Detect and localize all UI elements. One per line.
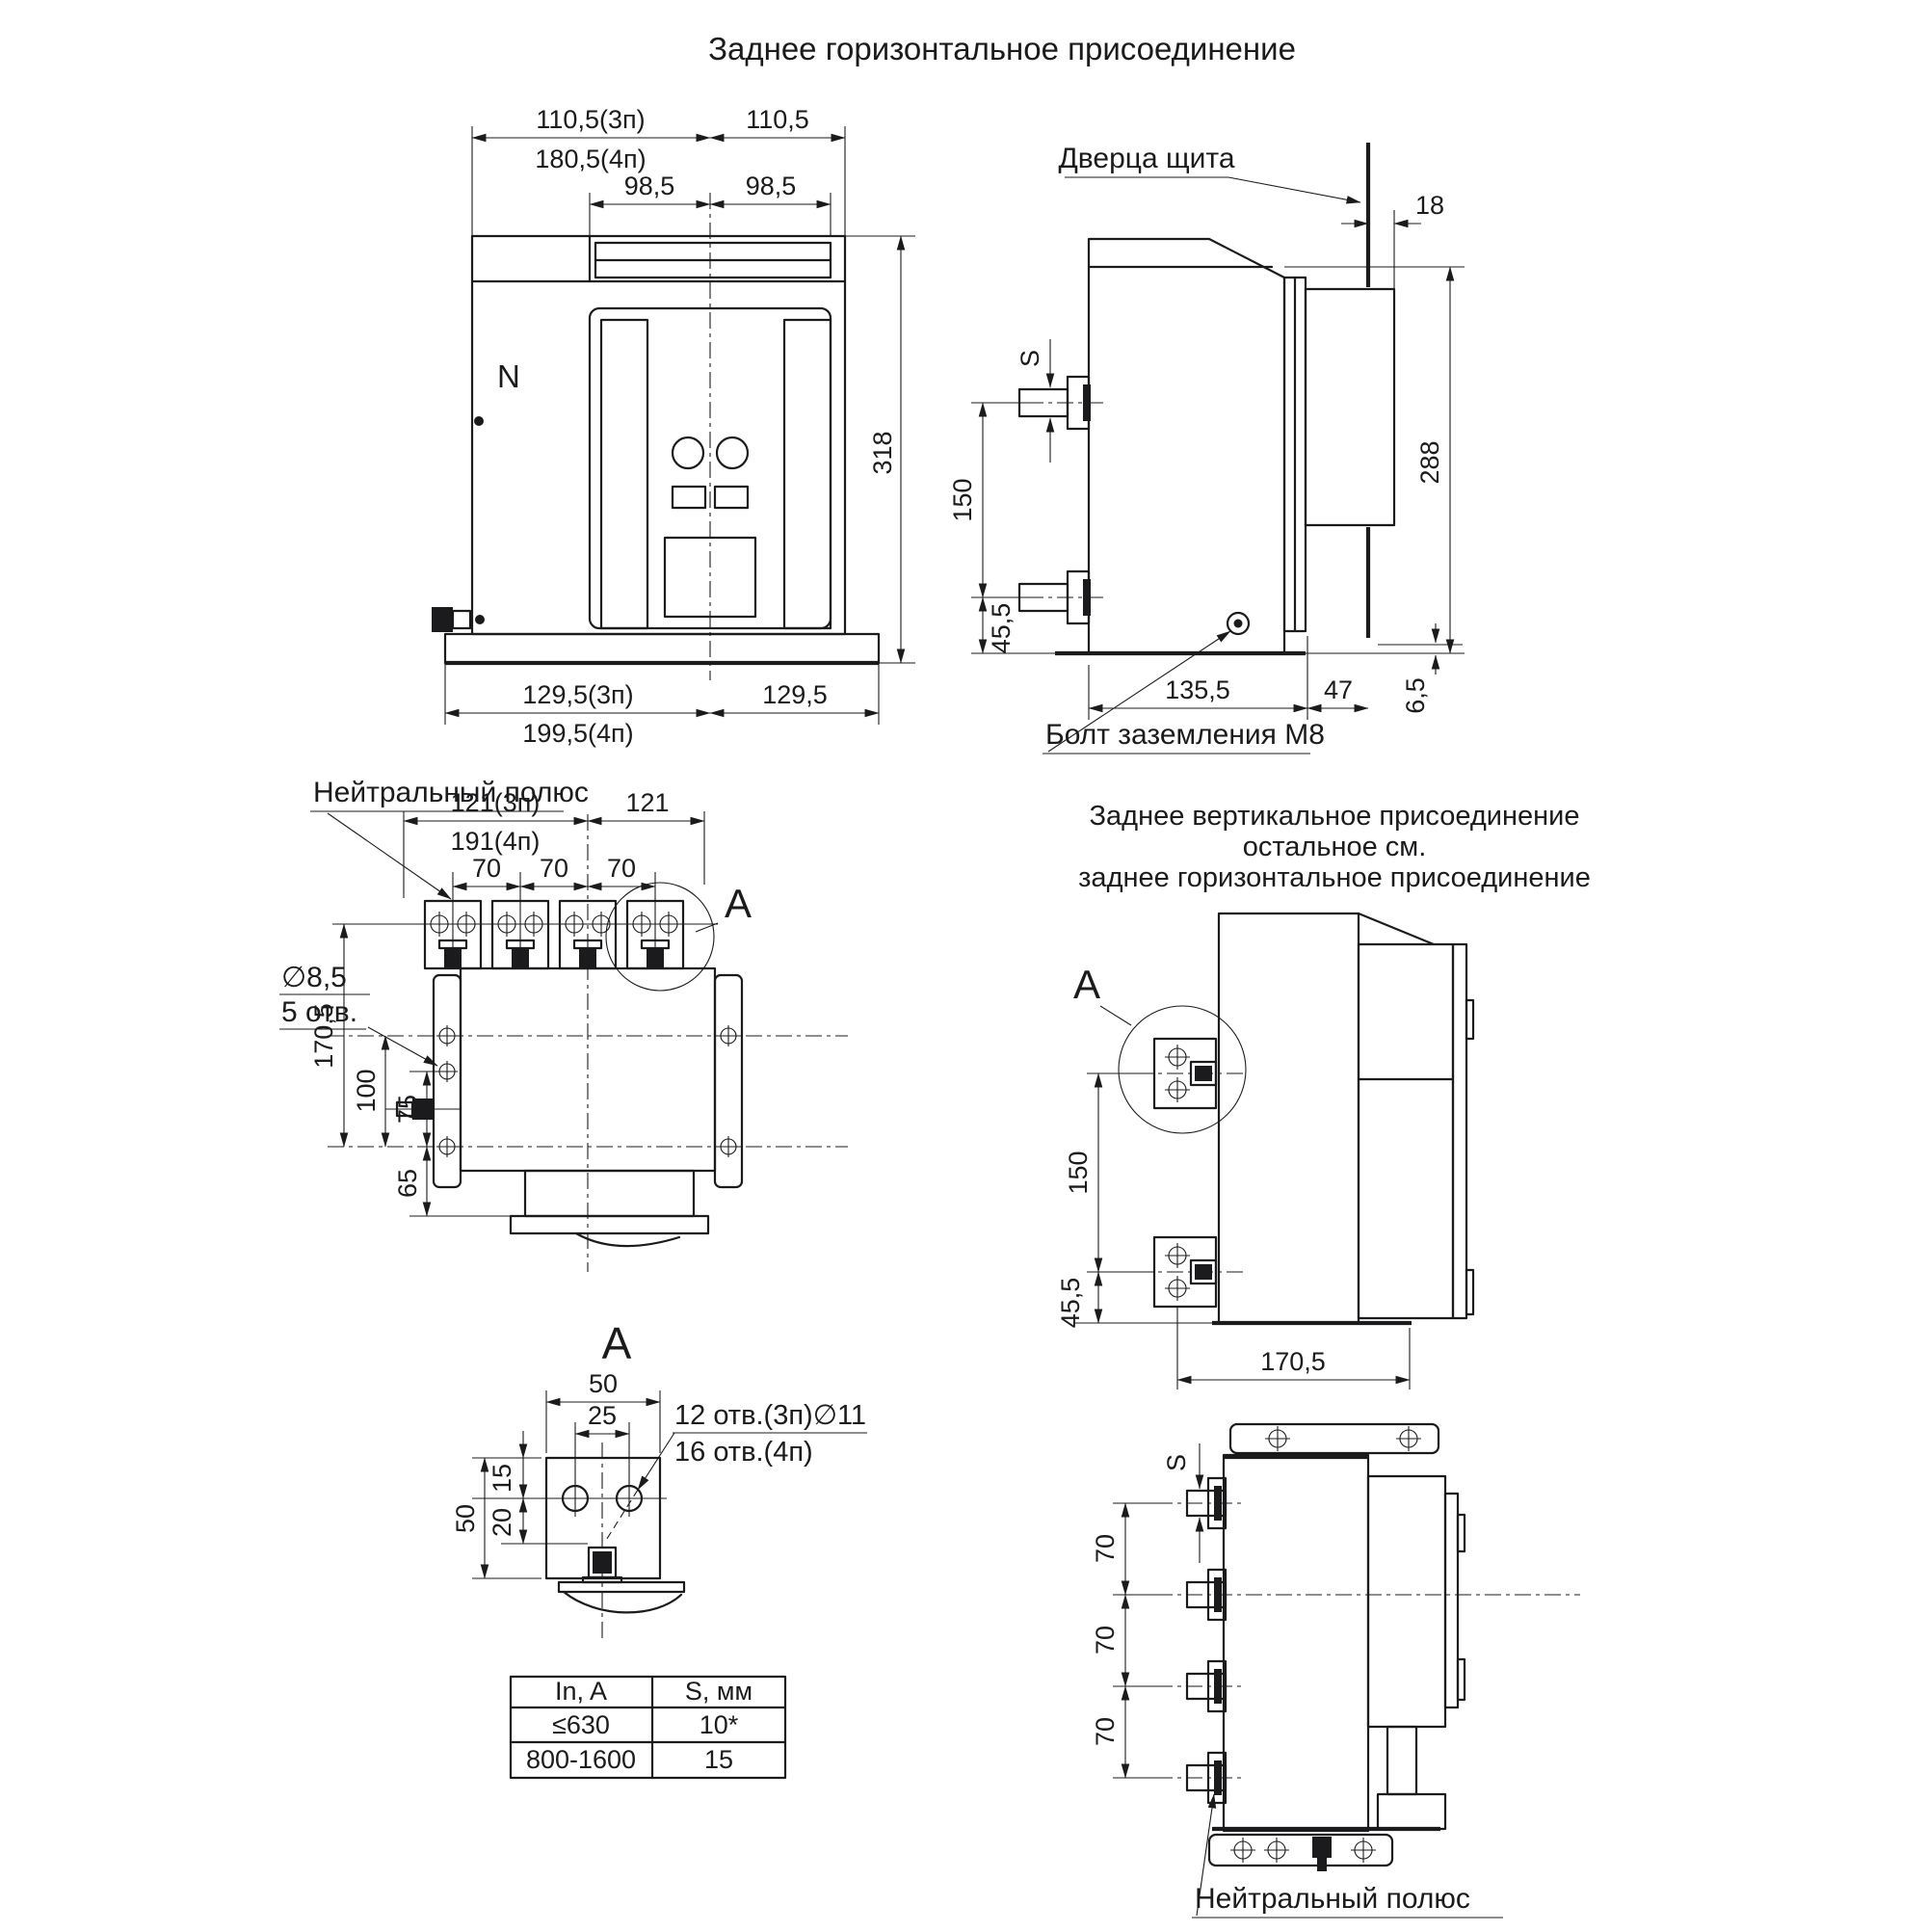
svg-text:S: S [1162,1454,1191,1471]
svg-text:288: 288 [1415,440,1444,484]
dim-front-bottom-width: 129,5(3п) 199,5(4п) 129,5 [445,663,879,748]
dim-door-gap: 6,5 [1401,623,1436,714]
bottom-mount-bracket [1209,1835,1392,1871]
dim-bottom-pole-pitch: 70 70 70 [1091,1503,1156,1778]
hole-note: ∅8,5 5 отв. [279,962,437,1066]
svg-text:70: 70 [1091,1626,1120,1654]
svg-text:45,5: 45,5 [987,603,1016,654]
neutral-pole-callout-bottom: Нейтральный полюс [1192,1794,1503,1918]
dim-terminal-thickness: S [1016,339,1050,463]
top-mount-bracket [1230,1424,1439,1453]
front-side-bolt [432,607,485,632]
dim-vertical-spacing: 150 [1064,1073,1147,1272]
mounting-base [445,634,879,663]
svg-text:50: 50 [451,1504,480,1533]
svg-text:135,5: 135,5 [1165,675,1230,704]
front-body-outline [472,236,845,634]
neutral-pole-marker: N [497,358,520,394]
pad-bolt [583,1548,621,1582]
svg-text:25: 25 [588,1401,617,1430]
bottom-view: S 70 70 70 Нейтральный полюс [1091,1424,1580,1918]
vertical-terminal-bottom [1137,1237,1243,1307]
svg-text:70: 70 [1091,1717,1120,1746]
bottom-terminal-4 [1156,1753,1243,1803]
dim-front-top-width: 110,5(3п) 180,5(4п) 110,5 [472,105,845,236]
control-button-right [717,437,748,468]
svg-text:110,5: 110,5 [746,105,809,134]
spec-table: In, A S, мм ≤630 10* 800-1600 15 [511,1677,785,1778]
dim-front-height: 318 [845,236,915,663]
dim-door-protrusion: 18 [1341,191,1444,289]
svg-text:Нейтральный полюс: Нейтральный полюс [1195,1883,1470,1915]
panel-door-callout: Дверца щита [1058,143,1360,202]
dim-side-height: 288 [1284,267,1465,653]
dim-terminal-to-base: 45,5 [971,597,1055,653]
drawing-page: Заднее горизонтальное присоединение N [0,0,1927,1927]
dim-side-depth: 135,5 47 [1089,636,1368,720]
vertical-title-3: заднее горизонтальное присоединение [1078,862,1591,893]
svg-text:А: А [1073,962,1100,1007]
dim-terminal-spacing: 150 [948,403,1041,597]
svg-text:Дверца щита: Дверца щита [1058,143,1234,174]
table-cell: ≤630 [552,1710,610,1739]
svg-text:Болт заземления М8: Болт заземления М8 [1045,719,1325,751]
svg-text:170,5: 170,5 [309,1003,338,1069]
svg-text:∅8,5: ∅8,5 [281,962,347,993]
dim-pad-verticals: 15 20 50 [451,1431,588,1578]
svg-text:16 отв.(4п): 16 отв.(4п) [674,1437,813,1468]
table-header-current: In, A [555,1677,607,1706]
side-view: Дверца щита 18 S 150 45,5 [948,143,1465,754]
ground-bolt [1227,613,1249,634]
svg-text:6,5: 6,5 [1401,677,1430,714]
svg-text:20: 20 [488,1508,516,1537]
indicator-window-left [673,487,705,508]
vertical-title-1: Заднее вертикальное присоединение [1090,801,1580,832]
front-view: N 110,5(3п) 180,5(4п) 110,5 98,5 98,5 31… [432,105,915,748]
svg-text:70: 70 [472,854,501,883]
svg-text:47: 47 [1324,675,1353,704]
svg-text:180,5(4п): 180,5(4п) [535,145,646,173]
lower-compartment [525,1171,694,1216]
svg-text:12 отв.(3п)∅11: 12 отв.(3п)∅11 [674,1400,866,1431]
dim-pole-pitch: 70 70 70 [453,854,655,887]
table-cell: 15 [704,1745,733,1774]
svg-text:70: 70 [1091,1534,1120,1563]
control-button-left [673,437,703,468]
svg-text:98,5: 98,5 [746,172,797,200]
top-view: Нейтральный полюс [279,777,848,1272]
svg-text:45,5: 45,5 [1056,1278,1085,1329]
dim-vertical-to-base: 45,5 [1056,1272,1212,1328]
engineering-drawing: Заднее горизонтальное присоединение N [0,0,1927,1927]
svg-text:150: 150 [948,478,977,521]
svg-text:110,5(3п): 110,5(3п) [536,105,645,134]
svg-text:121(3п): 121(3п) [451,788,541,817]
vertical-view: Заднее вертикальное присоединение осталь… [1056,801,1591,1389]
detail-a-title: А [602,1318,632,1368]
svg-text:100: 100 [352,1069,381,1112]
svg-text:65: 65 [393,1169,422,1198]
indicator-window-right [715,487,748,508]
page-title: Заднее горизонтальное присоединение [708,31,1296,66]
svg-text:18: 18 [1415,191,1444,220]
svg-text:170,5: 170,5 [1260,1347,1326,1376]
detail-a-view: А 50 25 12 отв.(3п)∅11 [451,1318,867,1638]
svg-text:98,5: 98,5 [624,172,675,200]
front-escutcheon [1306,289,1394,525]
bottom-body-outline [1224,1455,1368,1831]
vertical-body-outline [1219,913,1359,1323]
table-cell: 10* [700,1710,739,1739]
svg-text:191(4п): 191(4п) [451,827,541,856]
svg-text:318: 318 [868,431,897,474]
table-cell: 800-1600 [526,1745,636,1774]
svg-text:70: 70 [540,854,568,883]
vertical-title-2: остальное см. [1243,832,1427,862]
svg-text:70: 70 [607,854,636,883]
pad-holes-note: 12 отв.(3п)∅11 16 отв.(4п) [605,1400,867,1542]
svg-text:75: 75 [393,1095,422,1124]
svg-text:129,5(3п): 129,5(3п) [522,680,633,709]
svg-text:121: 121 [625,788,669,817]
table-header-thickness: S, мм [685,1677,752,1706]
svg-text:150: 150 [1064,1151,1093,1194]
side-body-outline [1089,239,1284,653]
bottom-terminal-3 [1156,1661,1243,1711]
svg-text:199,5(4п): 199,5(4п) [522,719,633,748]
svg-text:129,5: 129,5 [762,680,828,709]
vertical-terminal-top [1137,1039,1243,1108]
svg-text:15: 15 [488,1464,516,1493]
svg-text:50: 50 [589,1369,618,1398]
svg-text:А: А [725,881,752,926]
svg-text:S: S [1016,350,1044,367]
